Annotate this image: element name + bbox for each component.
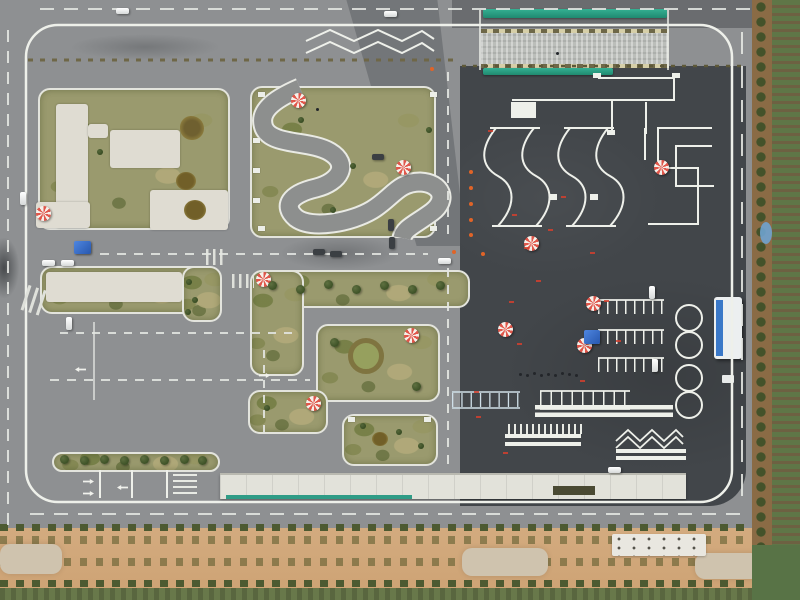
concrete-pad — [88, 124, 108, 138]
car-dark — [389, 237, 395, 249]
practice-pad — [460, 66, 746, 506]
dark-stain — [0, 224, 26, 312]
concrete-patch — [0, 544, 62, 574]
grass-island — [248, 390, 328, 434]
tent-blue — [74, 241, 91, 254]
bus-shelter-blue-side — [716, 300, 723, 356]
field-rows — [772, 0, 800, 600]
grass-island — [342, 414, 438, 466]
s-curve-island — [250, 86, 436, 238]
aerial-photo-driving-course — [0, 0, 800, 600]
blue-object — [760, 222, 772, 244]
arrow — [117, 485, 128, 490]
cone — [452, 250, 456, 254]
car-white — [20, 192, 26, 205]
tire-smudge — [280, 236, 400, 270]
ramp-green-edge — [483, 68, 613, 75]
lane-lines — [100, 470, 167, 498]
canopy-teal-edge — [226, 495, 412, 499]
car-white — [66, 317, 72, 330]
arrow — [83, 491, 94, 496]
storage-roof — [612, 534, 706, 556]
arrow — [83, 479, 94, 484]
concrete-patch — [462, 548, 548, 576]
tree-row — [752, 0, 770, 600]
car-white — [438, 258, 451, 264]
arrow — [75, 367, 86, 372]
bus-shelter — [714, 297, 742, 359]
car-white — [116, 8, 129, 14]
concrete-pad — [46, 272, 182, 302]
car-dark — [330, 251, 342, 257]
shrub-row — [0, 524, 760, 531]
plant-row — [0, 558, 760, 566]
canopy-sign — [553, 486, 595, 495]
ramp-green-edge — [483, 9, 667, 18]
concrete-pad — [110, 130, 180, 168]
long-canopy-roof — [220, 473, 686, 499]
grass-island — [182, 266, 222, 322]
vegetation-strip-bottom — [0, 588, 800, 600]
shrub-row — [0, 580, 760, 587]
concrete-pad — [36, 202, 90, 228]
hill-start-ramp — [481, 33, 669, 66]
dirt-strip-right — [752, 0, 800, 600]
car-dark — [313, 249, 325, 255]
grass-island — [316, 324, 440, 402]
shelter-step — [722, 375, 734, 383]
tire-smudge — [70, 34, 220, 60]
concrete-pad — [150, 190, 228, 230]
grass-island — [250, 270, 304, 376]
field-corner — [752, 545, 800, 600]
tree-lined-island — [52, 452, 220, 472]
